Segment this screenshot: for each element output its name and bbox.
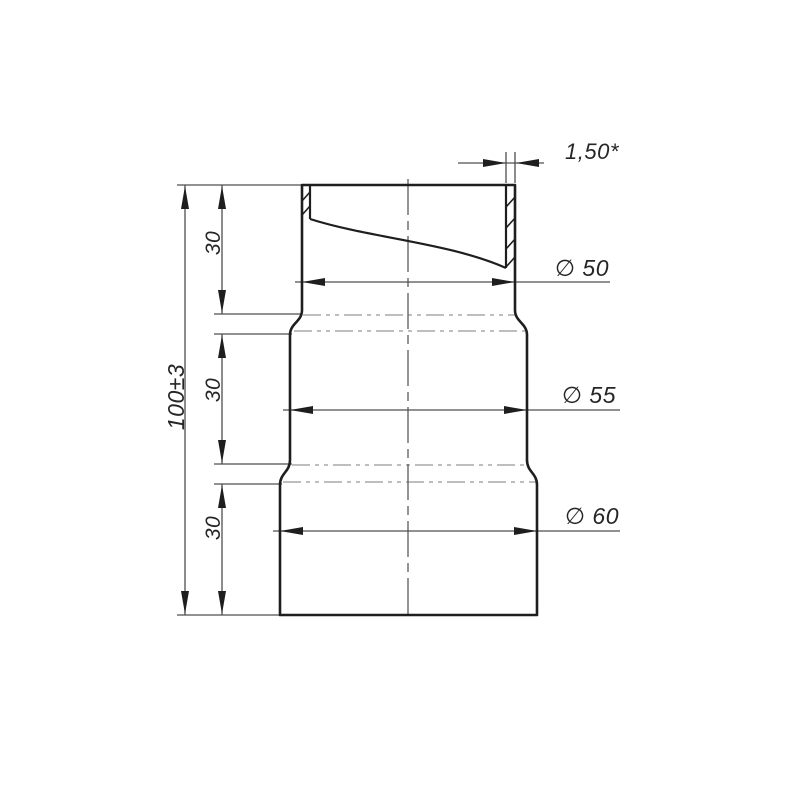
total-height-label: 100±3: [163, 364, 189, 430]
dimension-labels: 1,50* ∅ 50 ∅ 55 ∅ 60 100±3 30 30 30: [163, 139, 620, 540]
wall-thickness-label: 1,50*: [565, 139, 620, 164]
dimension-arrowheads: [181, 159, 539, 614]
middle-section-height-label: 30: [202, 378, 225, 402]
arrowhead-down: [218, 591, 226, 614]
arrowhead-down: [218, 440, 226, 463]
technical-drawing-page: 1,50* ∅ 50 ∅ 55 ∅ 60 100±3 30 30 30: [0, 0, 800, 800]
arrowhead-left: [302, 278, 325, 286]
arrowhead-right: [492, 278, 515, 286]
arrowhead-left: [290, 406, 313, 414]
diameter-middle-label: ∅ 55: [562, 382, 616, 408]
arrowhead-up: [218, 335, 226, 358]
dimension-lines: [185, 163, 620, 615]
hatch-line: [506, 218, 515, 228]
arrowhead-right: [514, 527, 537, 535]
bottom-section-height-label: 30: [202, 516, 225, 540]
top-section-height-label: 30: [202, 231, 225, 255]
arrowhead-left: [516, 159, 539, 167]
hatch-line: [506, 257, 515, 267]
arrowhead-left: [280, 527, 303, 535]
hatch-line: [506, 197, 515, 207]
arrowhead-right: [483, 159, 506, 167]
arrowhead-right: [504, 406, 527, 414]
arrowhead-down: [181, 591, 189, 614]
phantom-lines: [283, 315, 536, 482]
diameter-bottom-label: ∅ 60: [565, 503, 619, 529]
hatch-line: [506, 239, 515, 249]
drawing-canvas: 1,50* ∅ 50 ∅ 55 ∅ 60 100±3 30 30 30: [0, 0, 800, 800]
extension-lines: [177, 152, 515, 615]
arrowhead-down: [218, 290, 226, 313]
arrowhead-up: [218, 485, 226, 508]
diameter-top-label: ∅ 50: [555, 255, 609, 281]
arrowhead-up: [218, 186, 226, 209]
arrowhead-up: [181, 186, 189, 209]
